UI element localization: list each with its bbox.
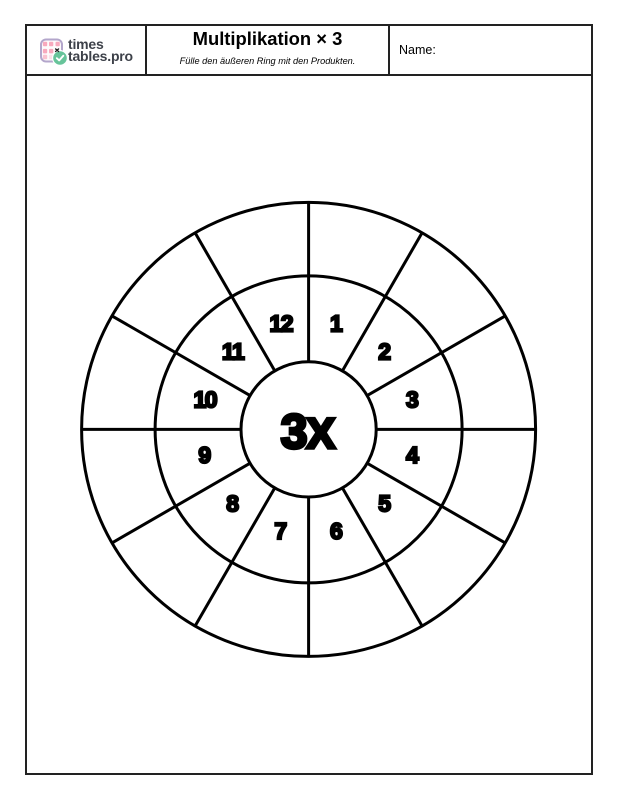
svg-text:7: 7 <box>274 518 287 544</box>
svg-text:1: 1 <box>330 311 343 337</box>
svg-text:12: 12 <box>270 311 293 337</box>
svg-text:4: 4 <box>406 442 419 468</box>
svg-text:3X: 3X <box>281 406 336 459</box>
svg-text:9: 9 <box>198 442 211 468</box>
svg-text:2: 2 <box>378 338 391 364</box>
svg-text:3: 3 <box>406 387 419 413</box>
svg-text:6: 6 <box>330 518 343 544</box>
svg-text:5: 5 <box>378 490 391 516</box>
svg-text:8: 8 <box>226 490 239 516</box>
svg-text:10: 10 <box>194 387 217 413</box>
svg-text:11: 11 <box>222 338 245 364</box>
